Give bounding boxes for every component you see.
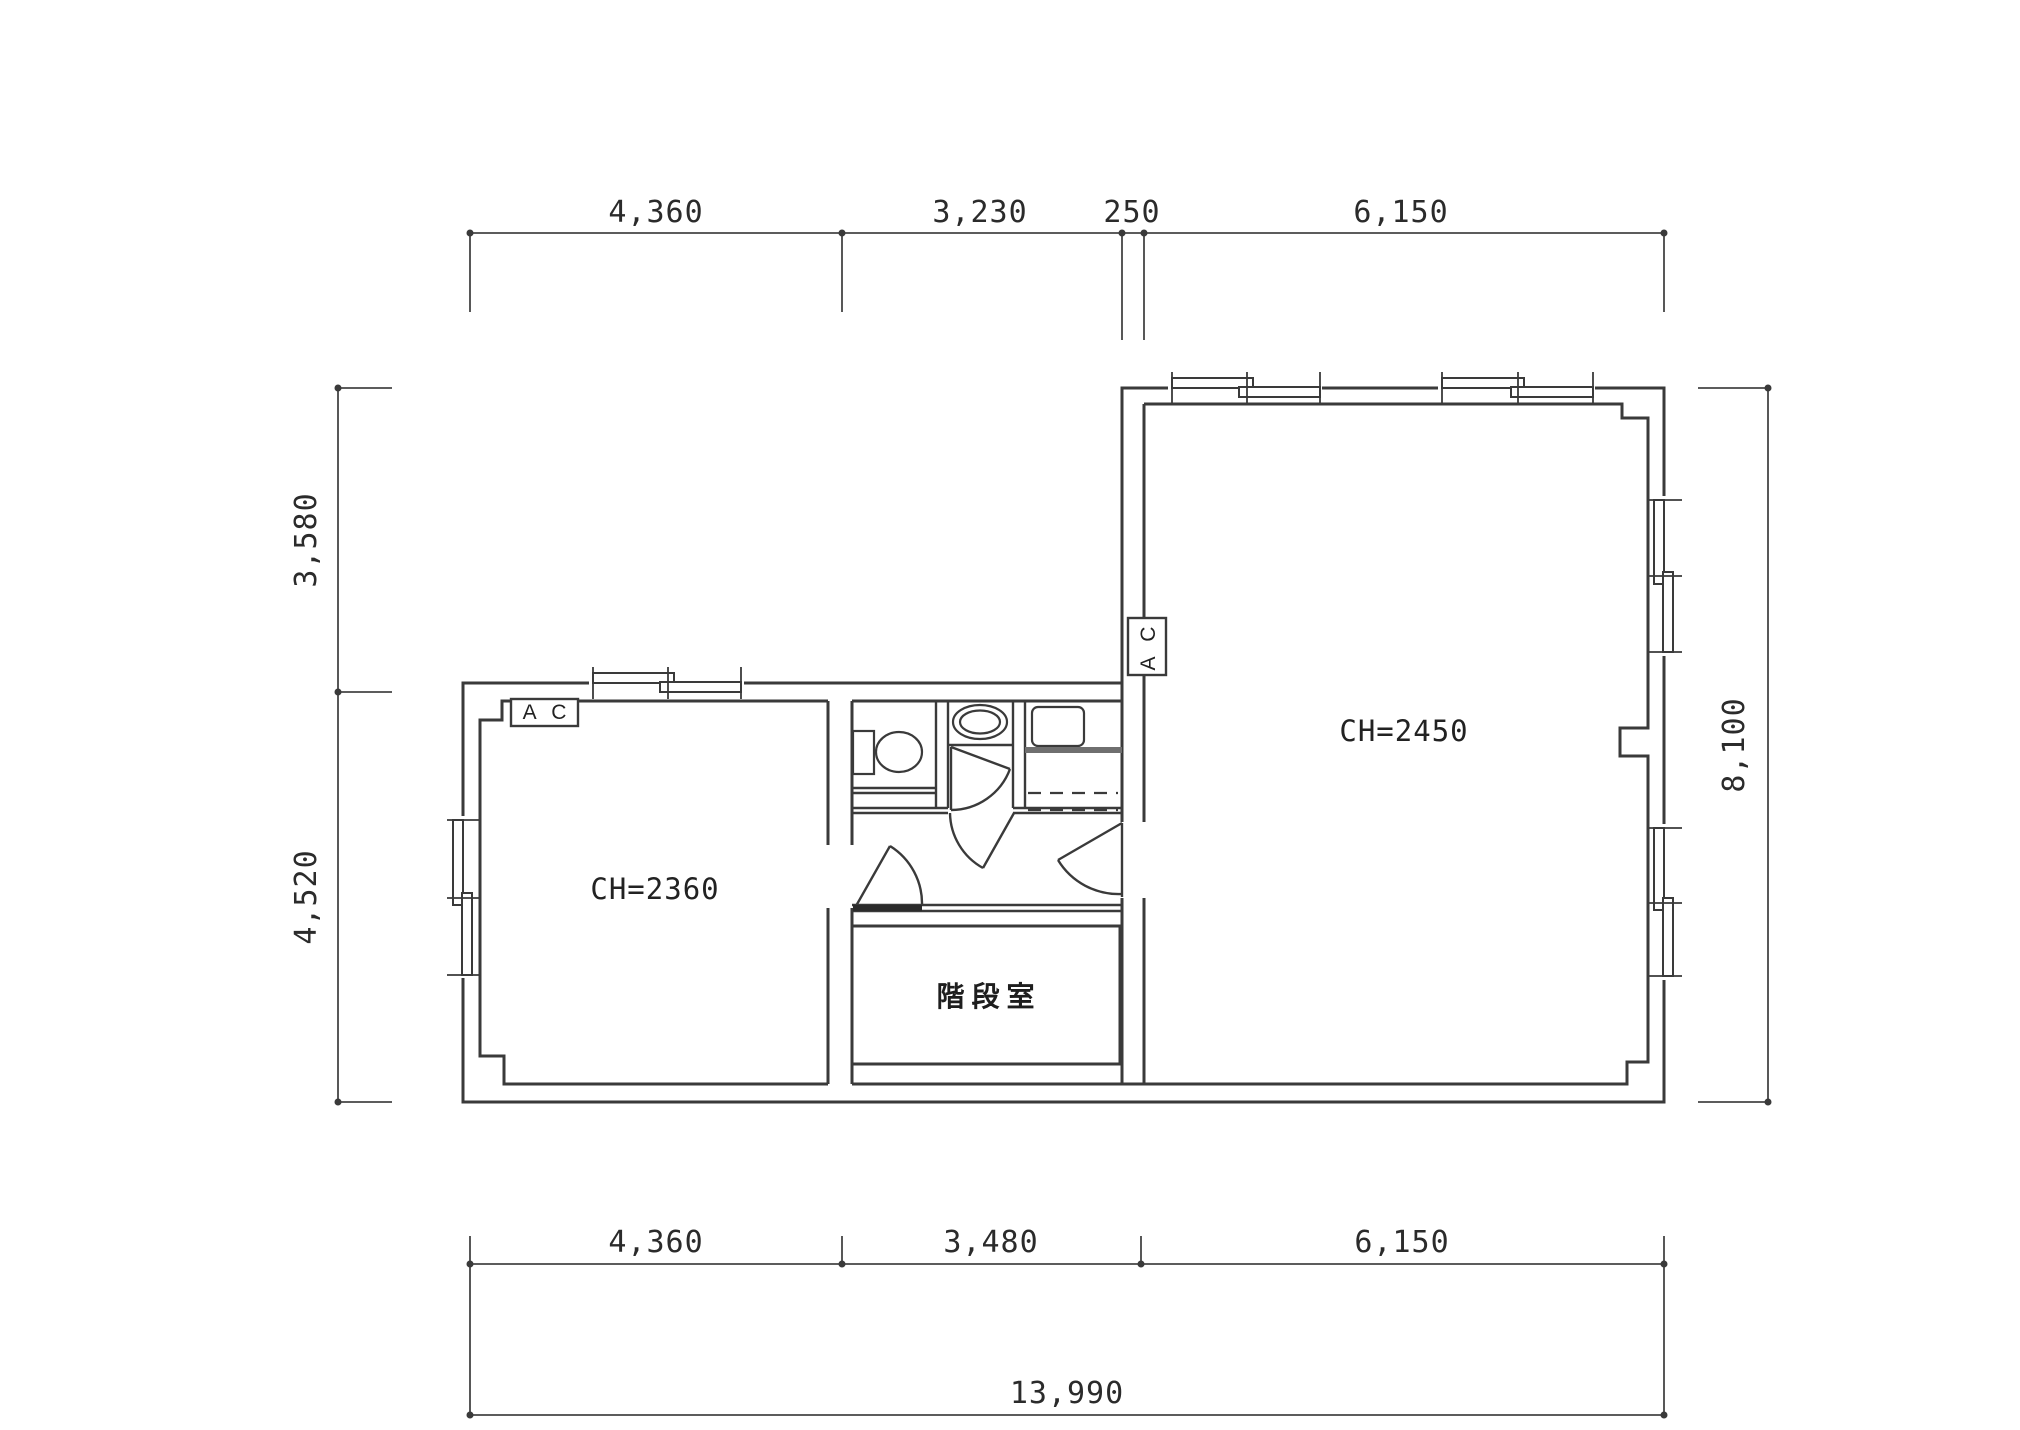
toilet-tank — [853, 731, 874, 774]
dimension-bottom: 4,360 3,480 6,150 13,990 — [467, 1225, 1668, 1419]
floor-plan-page: 4,360 3,230 250 6,150 3,580 4,520 8,100 … — [0, 0, 2020, 1430]
door-hall-left — [856, 846, 922, 906]
window-left-room-side — [447, 816, 479, 978]
window-right-wall-upper — [1648, 496, 1682, 656]
ac-label-right-room: A C — [1137, 622, 1160, 671]
dim-right-8100: 8,100 — [1717, 697, 1752, 792]
door-washroom — [951, 747, 1010, 810]
wall-corridor-rightroom — [1122, 404, 1144, 1084]
dim-left-4520: 4,520 — [289, 849, 324, 944]
dim-bottom-6150: 6,150 — [1354, 1225, 1449, 1260]
dim-top-6150: 6,150 — [1353, 195, 1448, 230]
ac-label-left-room: A C — [523, 701, 572, 724]
left-room-ceiling-height: CH=2360 — [590, 872, 719, 906]
floor-plan-drawing: 4,360 3,230 250 6,150 3,580 4,520 8,100 … — [0, 0, 2020, 1430]
dim-top-250: 250 — [1103, 195, 1160, 230]
stair-room-label: 階段室 — [936, 980, 1041, 1013]
dim-bottom-total-13990: 13,990 — [1010, 1376, 1124, 1411]
dimension-right: 8,100 — [1698, 385, 1772, 1106]
dim-top-3230: 3,230 — [932, 195, 1027, 230]
room-labels: CH=2360 CH=2450 階段室 — [590, 714, 1468, 1013]
window-left-room-top — [589, 667, 744, 699]
dim-bottom-3480: 3,480 — [943, 1225, 1038, 1260]
dimension-left: 3,580 4,520 — [289, 385, 392, 1106]
dim-top-4360: 4,360 — [608, 195, 703, 230]
dim-bottom-4360: 4,360 — [608, 1225, 703, 1260]
fixtures — [853, 705, 1122, 810]
window-top-2 — [1438, 372, 1595, 404]
window-right-wall-lower — [1648, 824, 1682, 980]
right-room-ceiling-height: CH=2450 — [1339, 714, 1468, 748]
toilet-bowl — [876, 732, 922, 772]
door-hall-center — [950, 813, 1014, 868]
wall-toilet-bottom — [852, 788, 936, 793]
wall-leftroom-corridor — [828, 701, 852, 1084]
door-to-right-room — [1058, 823, 1122, 897]
dim-left-3580: 3,580 — [289, 492, 324, 587]
dimension-top: 4,360 3,230 250 6,150 — [467, 195, 1668, 340]
washer-pan — [1032, 707, 1084, 746]
washbasin-inner — [960, 711, 1000, 734]
dim-left-extensions — [338, 388, 392, 1102]
window-top-1 — [1168, 372, 1322, 404]
dim-top-extensions — [470, 233, 1664, 340]
